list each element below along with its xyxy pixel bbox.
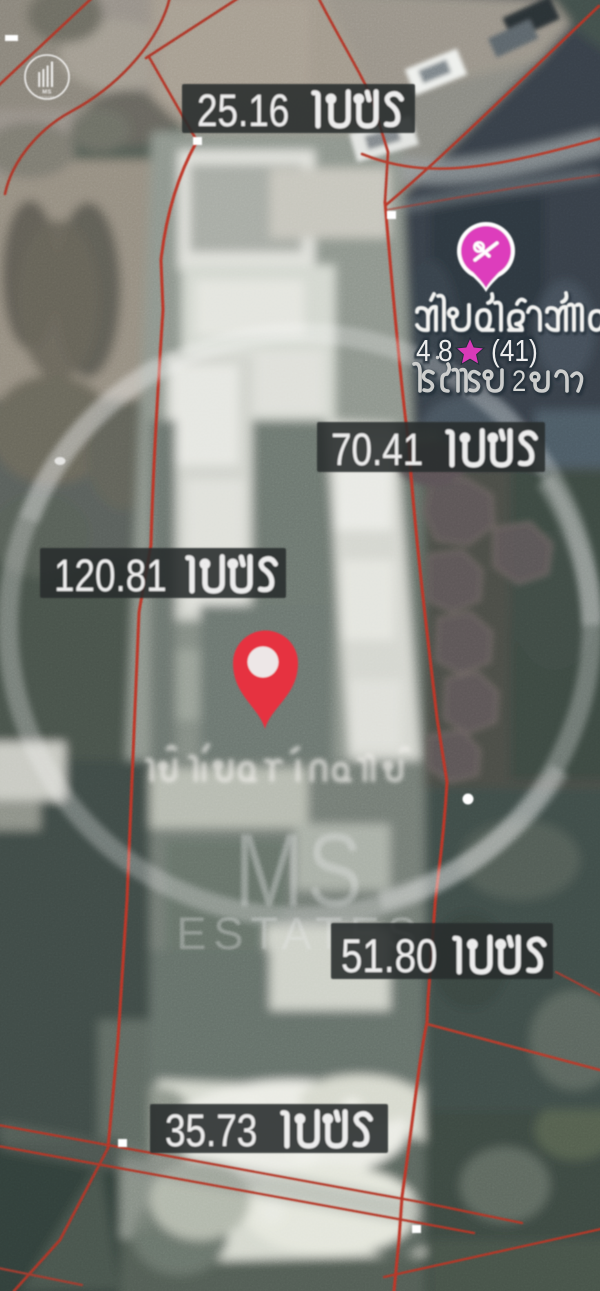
- svg-text:ESTATES: ESTATES: [39, 95, 54, 99]
- svg-text:25.16: 25.16: [197, 86, 289, 136]
- svg-text:70.41: 70.41: [331, 425, 423, 475]
- svg-text:35.73: 35.73: [165, 1106, 257, 1156]
- svg-text:2: 2: [512, 364, 526, 397]
- svg-text:51.80: 51.80: [341, 930, 437, 982]
- svg-text:MS: MS: [42, 90, 52, 96]
- svg-text:120.81: 120.81: [54, 551, 167, 601]
